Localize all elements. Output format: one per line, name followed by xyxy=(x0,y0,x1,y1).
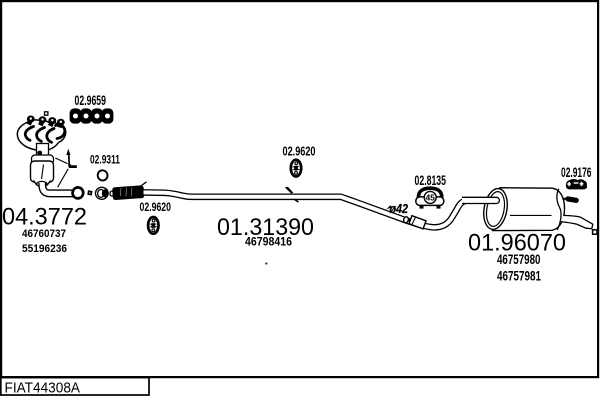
svg-text:FIAT44308A: FIAT44308A xyxy=(5,381,81,397)
svg-text:46760737: 46760737 xyxy=(22,228,66,240)
svg-text:ø42: ø42 xyxy=(390,202,409,216)
svg-text:02.9620: 02.9620 xyxy=(283,144,316,159)
svg-text:02.9620: 02.9620 xyxy=(140,200,172,214)
svg-text:02.8135: 02.8135 xyxy=(415,172,447,188)
svg-text:04.3772: 04.3772 xyxy=(2,204,87,231)
svg-text:45: 45 xyxy=(425,192,435,202)
svg-text:46798416: 46798416 xyxy=(245,235,292,249)
svg-text:02.9176: 02.9176 xyxy=(561,164,592,180)
svg-text:02.9311: 02.9311 xyxy=(90,153,120,167)
svg-text:55196236: 55196236 xyxy=(22,243,67,255)
svg-text:46757980: 46757980 xyxy=(497,252,541,267)
svg-text:46757981: 46757981 xyxy=(497,269,541,284)
svg-text:02.9659: 02.9659 xyxy=(75,92,107,108)
